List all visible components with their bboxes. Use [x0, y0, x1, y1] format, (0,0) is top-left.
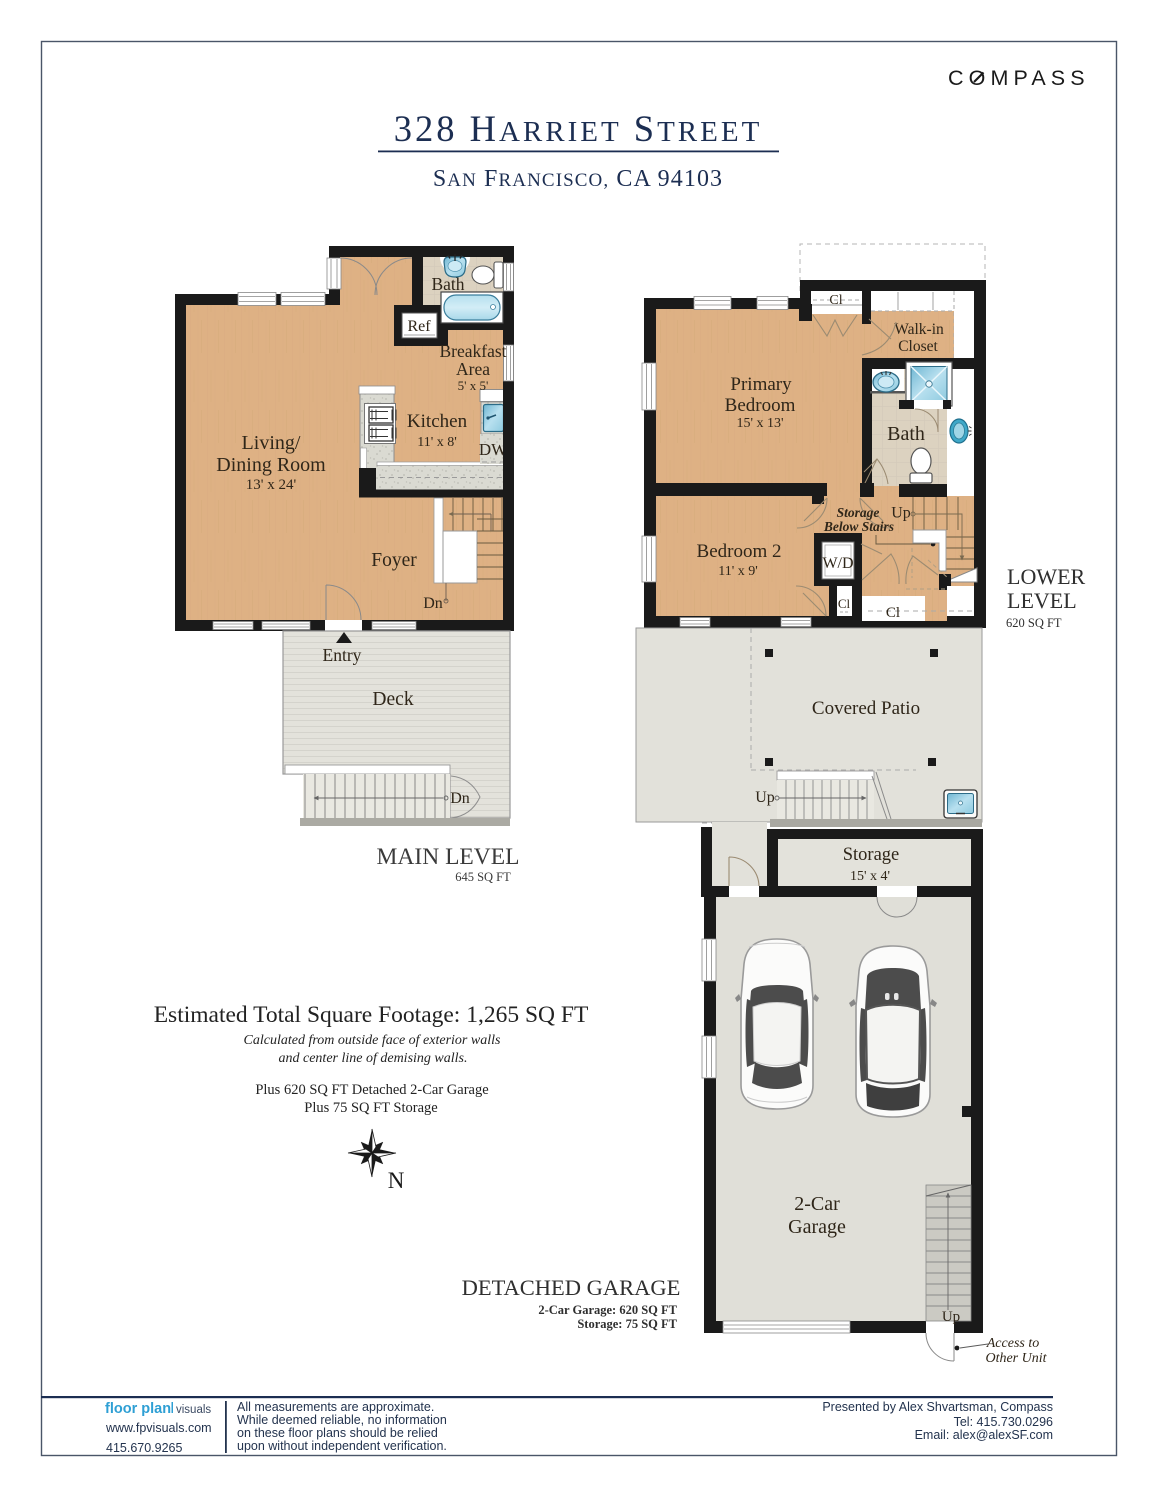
svg-text:620 SQ FT: 620 SQ FT: [1006, 616, 1062, 630]
svg-text:Up: Up: [891, 505, 911, 522]
svg-text:upon without independent verif: upon without independent verification.: [237, 1439, 447, 1453]
svg-text:www.fpvisuals.com: www.fpvisuals.com: [105, 1421, 212, 1435]
svg-text:Walk-in: Walk-in: [894, 321, 944, 338]
svg-text:Foyer: Foyer: [371, 550, 417, 571]
svg-text:Dn: Dn: [450, 790, 470, 807]
svg-text:Kitchen: Kitchen: [407, 411, 468, 432]
svg-text:2-Car: 2-Car: [794, 1193, 840, 1215]
svg-text:Up: Up: [942, 1309, 960, 1325]
svg-text:Dn: Dn: [423, 595, 443, 612]
svg-text:Storage: Storage: [837, 505, 880, 520]
svg-text:COMPASS: COMPASS: [948, 66, 1090, 90]
svg-text:Bedroom: Bedroom: [725, 395, 796, 416]
svg-text:Storage: 75 SQ FT: Storage: 75 SQ FT: [577, 1317, 677, 1331]
svg-text:645 SQ FT: 645 SQ FT: [455, 870, 511, 884]
svg-text:Covered Patio: Covered Patio: [812, 698, 920, 719]
svg-text:Dining Room: Dining Room: [216, 454, 326, 476]
svg-text:13' x 24': 13' x 24': [246, 477, 297, 493]
svg-text:Breakfast: Breakfast: [439, 341, 506, 361]
svg-text:Calculated from outside face o: Calculated from outside face of exterior…: [244, 1033, 501, 1048]
svg-text:Other Unit: Other Unit: [985, 1351, 1047, 1366]
svg-text:Area: Area: [456, 359, 490, 379]
svg-text:Email: alex@alexSF.com: Email: alex@alexSF.com: [915, 1428, 1053, 1442]
svg-text:Bedroom 2: Bedroom 2: [697, 541, 782, 562]
svg-text:2-Car Garage: 620 SQ FT: 2-Car Garage: 620 SQ FT: [538, 1303, 677, 1317]
svg-text:Access to: Access to: [986, 1336, 1039, 1351]
svg-text:LOWER: LOWER: [1007, 564, 1086, 589]
svg-text:on these floor plans should be: on these floor plans should be relied: [237, 1426, 438, 1440]
svg-text:Below Stairs: Below Stairs: [823, 519, 894, 534]
svg-text:Bath: Bath: [431, 274, 464, 294]
svg-text:Garage: Garage: [788, 1216, 846, 1238]
svg-text:DETACHED GARAGE: DETACHED GARAGE: [462, 1275, 681, 1300]
svg-text:15' x 13': 15' x 13': [736, 416, 783, 431]
svg-text:Storage: Storage: [843, 845, 900, 865]
svg-text:floor plan: floor plan: [105, 1401, 171, 1417]
svg-text:Estimated Total Square Footage: Estimated Total Square Footage: 1,265 SQ…: [154, 1002, 589, 1028]
svg-text:While deemed reliable, no info: While deemed reliable, no information: [237, 1413, 447, 1427]
svg-text:SAN FRANCISCO, CA 94103: SAN FRANCISCO, CA 94103: [433, 166, 723, 192]
svg-text:Cl: Cl: [838, 596, 851, 611]
svg-text:11' x 9': 11' x 9': [718, 564, 758, 579]
svg-text:Plus 75 SQ FT Storage: Plus 75 SQ FT Storage: [304, 1100, 437, 1116]
svg-text:Living/: Living/: [242, 432, 301, 454]
svg-text:Plus 620 SQ FT Detached 2-Car: Plus 620 SQ FT Detached 2-Car Garage: [255, 1082, 488, 1098]
svg-text:Presented by Alex Shvartsman,: Presented by Alex Shvartsman, Compass: [822, 1400, 1053, 1414]
svg-text:Ref: Ref: [407, 318, 431, 335]
svg-text:11' x 8': 11' x 8': [417, 435, 457, 450]
svg-text:415.670.9265: 415.670.9265: [106, 1441, 183, 1455]
svg-text:Deck: Deck: [372, 689, 413, 710]
svg-text:Entry: Entry: [323, 645, 362, 665]
svg-text:5' x 5': 5' x 5': [458, 378, 489, 393]
svg-text:visuals: visuals: [176, 1404, 211, 1416]
svg-text:N: N: [388, 1168, 405, 1193]
svg-text:MAIN LEVEL: MAIN LEVEL: [377, 844, 520, 870]
svg-text:Cl: Cl: [829, 293, 842, 308]
svg-text:W/D: W/D: [822, 555, 853, 572]
svg-text:Cl: Cl: [886, 605, 900, 621]
svg-text:Closet: Closet: [898, 338, 938, 355]
svg-text:and center line of demising wa: and center line of demising walls.: [279, 1051, 468, 1066]
svg-text:Bath: Bath: [887, 423, 925, 445]
svg-text:Up: Up: [755, 789, 775, 806]
svg-text:15' x 4': 15' x 4': [850, 869, 890, 884]
svg-text:All measurements are approxima: All measurements are approximate.: [237, 1400, 434, 1414]
svg-text:Tel: 415.730.0296: Tel: 415.730.0296: [954, 1415, 1053, 1429]
svg-text:LEVEL: LEVEL: [1007, 588, 1077, 613]
svg-text:Primary: Primary: [730, 374, 792, 395]
